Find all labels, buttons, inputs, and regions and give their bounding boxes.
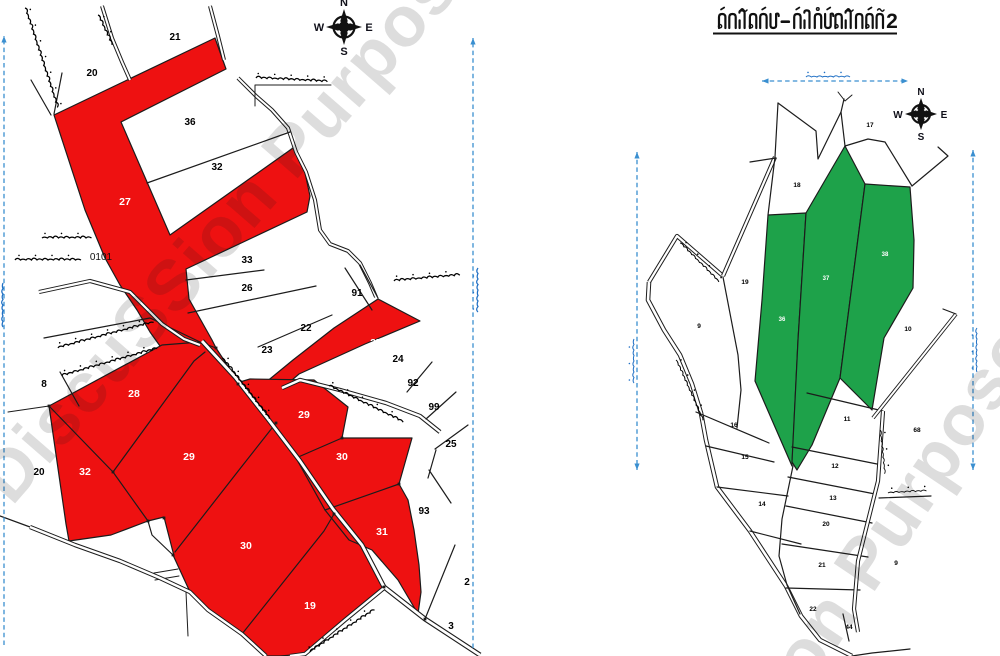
svg-text:17: 17 [866, 122, 874, 129]
svg-text:25: 25 [445, 439, 457, 450]
svg-text:91: 91 [351, 288, 363, 299]
svg-text:16: 16 [730, 422, 738, 429]
svg-text:29: 29 [183, 451, 195, 463]
svg-text:W: W [893, 110, 903, 121]
svg-text:13: 13 [829, 495, 837, 502]
svg-text:22: 22 [300, 323, 312, 334]
svg-text:26: 26 [241, 283, 253, 294]
svg-text:37: 37 [823, 276, 830, 282]
svg-text:14: 14 [758, 501, 766, 508]
svg-text:24: 24 [392, 354, 404, 365]
svg-text:93: 93 [418, 506, 430, 517]
svg-text:92: 92 [407, 378, 419, 389]
svg-text:W: W [314, 22, 325, 34]
svg-text:0101: 0101 [90, 252, 113, 263]
svg-text:36: 36 [184, 117, 196, 128]
svg-text:18: 18 [793, 182, 801, 189]
svg-text:99: 99 [428, 402, 440, 413]
svg-text:29: 29 [298, 409, 310, 421]
svg-text:23: 23 [261, 345, 273, 356]
svg-text:27: 27 [119, 196, 131, 208]
svg-text:S: S [918, 132, 925, 143]
svg-text:N: N [917, 87, 924, 98]
svg-text:32: 32 [79, 466, 91, 478]
svg-text:20: 20 [86, 68, 98, 79]
svg-text:19: 19 [304, 600, 316, 612]
svg-text:N: N [340, 0, 348, 9]
svg-text:30: 30 [240, 540, 252, 552]
svg-text:38: 38 [882, 252, 889, 258]
svg-text:20: 20 [822, 521, 830, 528]
svg-text:12: 12 [831, 463, 839, 470]
svg-text:3: 3 [448, 621, 454, 632]
svg-text:27: 27 [370, 337, 382, 349]
svg-text:30: 30 [336, 451, 348, 463]
svg-text:E: E [941, 110, 948, 121]
svg-text:36: 36 [779, 317, 786, 323]
svg-text:19: 19 [741, 279, 749, 286]
svg-text:31: 31 [376, 526, 388, 538]
svg-text:21: 21 [169, 32, 181, 43]
svg-text:9: 9 [697, 323, 701, 330]
svg-text:15: 15 [741, 454, 749, 461]
svg-text:11: 11 [844, 416, 851, 423]
svg-text:10: 10 [904, 326, 912, 333]
svg-text:2: 2 [464, 577, 470, 588]
svg-text:2: 2 [886, 10, 898, 33]
